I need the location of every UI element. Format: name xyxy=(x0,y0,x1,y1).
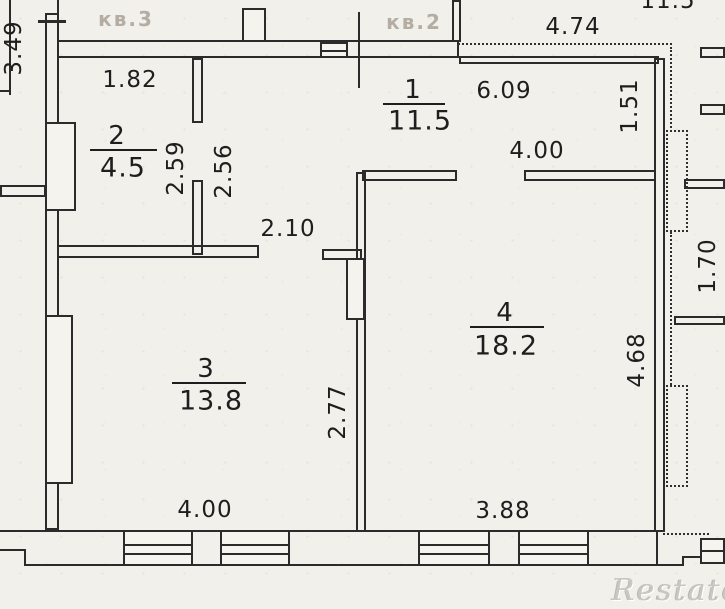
top-neighbor-wall-right xyxy=(452,0,461,42)
dim-room2-top-width: 1.82 xyxy=(102,67,157,93)
window-pane-line xyxy=(701,550,724,552)
stamp-apartment-left: кв.3 xyxy=(98,7,154,31)
door-leaf xyxy=(346,258,365,320)
balcony-dotted-line-right-1 xyxy=(670,47,672,132)
room2-right-wall-upper xyxy=(192,58,203,123)
left-neighbor-wall xyxy=(0,185,46,197)
room4-area: 18.2 xyxy=(474,331,538,362)
left-edge-wall-stub xyxy=(0,90,10,92)
right-neighbor-wall-mid xyxy=(684,179,725,189)
dim-right-top-height: 1.51 xyxy=(617,78,643,133)
window-bottom-1 xyxy=(123,530,193,566)
dim-room4-top-width: 4.00 xyxy=(509,138,564,164)
top-neighbor-wall-left xyxy=(57,0,59,40)
window-pane-line xyxy=(124,544,192,546)
window-pane-line xyxy=(419,544,489,546)
balcony-dotted-bay-1 xyxy=(666,130,688,232)
top-wall-right-section xyxy=(459,56,659,64)
window-pane-line xyxy=(519,553,588,555)
dim-room2-height-left: 2.59 xyxy=(163,140,189,195)
window-bottom-2 xyxy=(220,530,290,566)
dim-right-balcony-height: 1.70 xyxy=(695,238,721,293)
dim-hall-top-width: 6.09 xyxy=(476,78,531,104)
right-neighbor-wall-top xyxy=(700,104,725,115)
room3-fraction-line xyxy=(172,382,246,384)
balcony-dotted-line-top xyxy=(458,43,672,45)
bottom-wall-outer-line-left xyxy=(0,549,26,551)
room2-right-wall-lower xyxy=(192,180,203,255)
stamp-apartment-right: кв.2 xyxy=(386,10,442,34)
room1-number: 1 xyxy=(404,75,422,105)
balcony-dotted-line-right-3 xyxy=(663,487,665,535)
balcony-dotted-line-right-2 xyxy=(670,232,672,385)
room3-number: 3 xyxy=(197,354,215,384)
floor-plan: 1 11.5 2 4.5 3 13.8 4 18.2 1.82 2.59 2.5… xyxy=(0,0,725,609)
window-pane-line xyxy=(419,553,489,555)
room4-top-partition-right xyxy=(524,170,656,181)
balcony-dotted-line-bottom xyxy=(663,533,709,535)
room1-area: 11.5 xyxy=(388,106,452,137)
room2-area: 4.5 xyxy=(100,153,146,184)
bottom-wall-right-corner xyxy=(656,530,658,566)
window-top-wall xyxy=(320,42,348,58)
room4-fraction-line xyxy=(470,326,544,328)
right-neighbor-wall-low xyxy=(674,316,725,325)
window-pane-line xyxy=(221,553,289,555)
left-wall-block-upper xyxy=(45,122,76,211)
room3-room4-wall xyxy=(356,172,366,532)
top-wall-pilaster xyxy=(242,8,266,42)
room2-number: 2 xyxy=(108,121,126,151)
dim-room3-bottom-width: 4.00 xyxy=(177,497,232,523)
left-wall-block-lower xyxy=(45,315,73,484)
room4-top-partition-left xyxy=(362,170,457,181)
top-right-corner-wall xyxy=(700,47,725,58)
window-bottom-right xyxy=(700,538,725,564)
window-pane-line xyxy=(321,50,347,52)
watermark-logo: Restate xyxy=(612,573,725,608)
balcony-dotted-bay-2 xyxy=(666,385,688,487)
window-pane-line xyxy=(519,544,588,546)
dim-room4-bottom-width: 3.88 xyxy=(475,498,530,524)
window-bottom-3 xyxy=(418,530,490,566)
dim-top-right-partial: 11.5 xyxy=(640,0,695,14)
window-pane-line xyxy=(221,544,289,546)
room3-area: 13.8 xyxy=(179,386,243,417)
survey-tick-line xyxy=(358,12,360,88)
dim-balcony-top-width: 4.74 xyxy=(545,14,600,40)
window-pane-line xyxy=(124,553,192,555)
room2-bottom-wall xyxy=(57,245,259,258)
room4-number: 4 xyxy=(496,298,514,328)
dim-left-edge-height: 3.49 xyxy=(1,20,27,75)
dim-hall-opening-width: 2.10 xyxy=(260,216,315,242)
window-bottom-4 xyxy=(518,530,589,566)
top-exterior-wall xyxy=(57,40,459,58)
room2-fraction-line xyxy=(90,149,157,151)
left-wall-tick xyxy=(38,20,66,23)
dim-room4-right-height: 4.68 xyxy=(624,332,650,387)
dim-room2-height-right: 2.56 xyxy=(211,143,237,198)
right-exterior-wall xyxy=(654,58,665,532)
dim-room3-right-height: 2.77 xyxy=(325,384,351,439)
